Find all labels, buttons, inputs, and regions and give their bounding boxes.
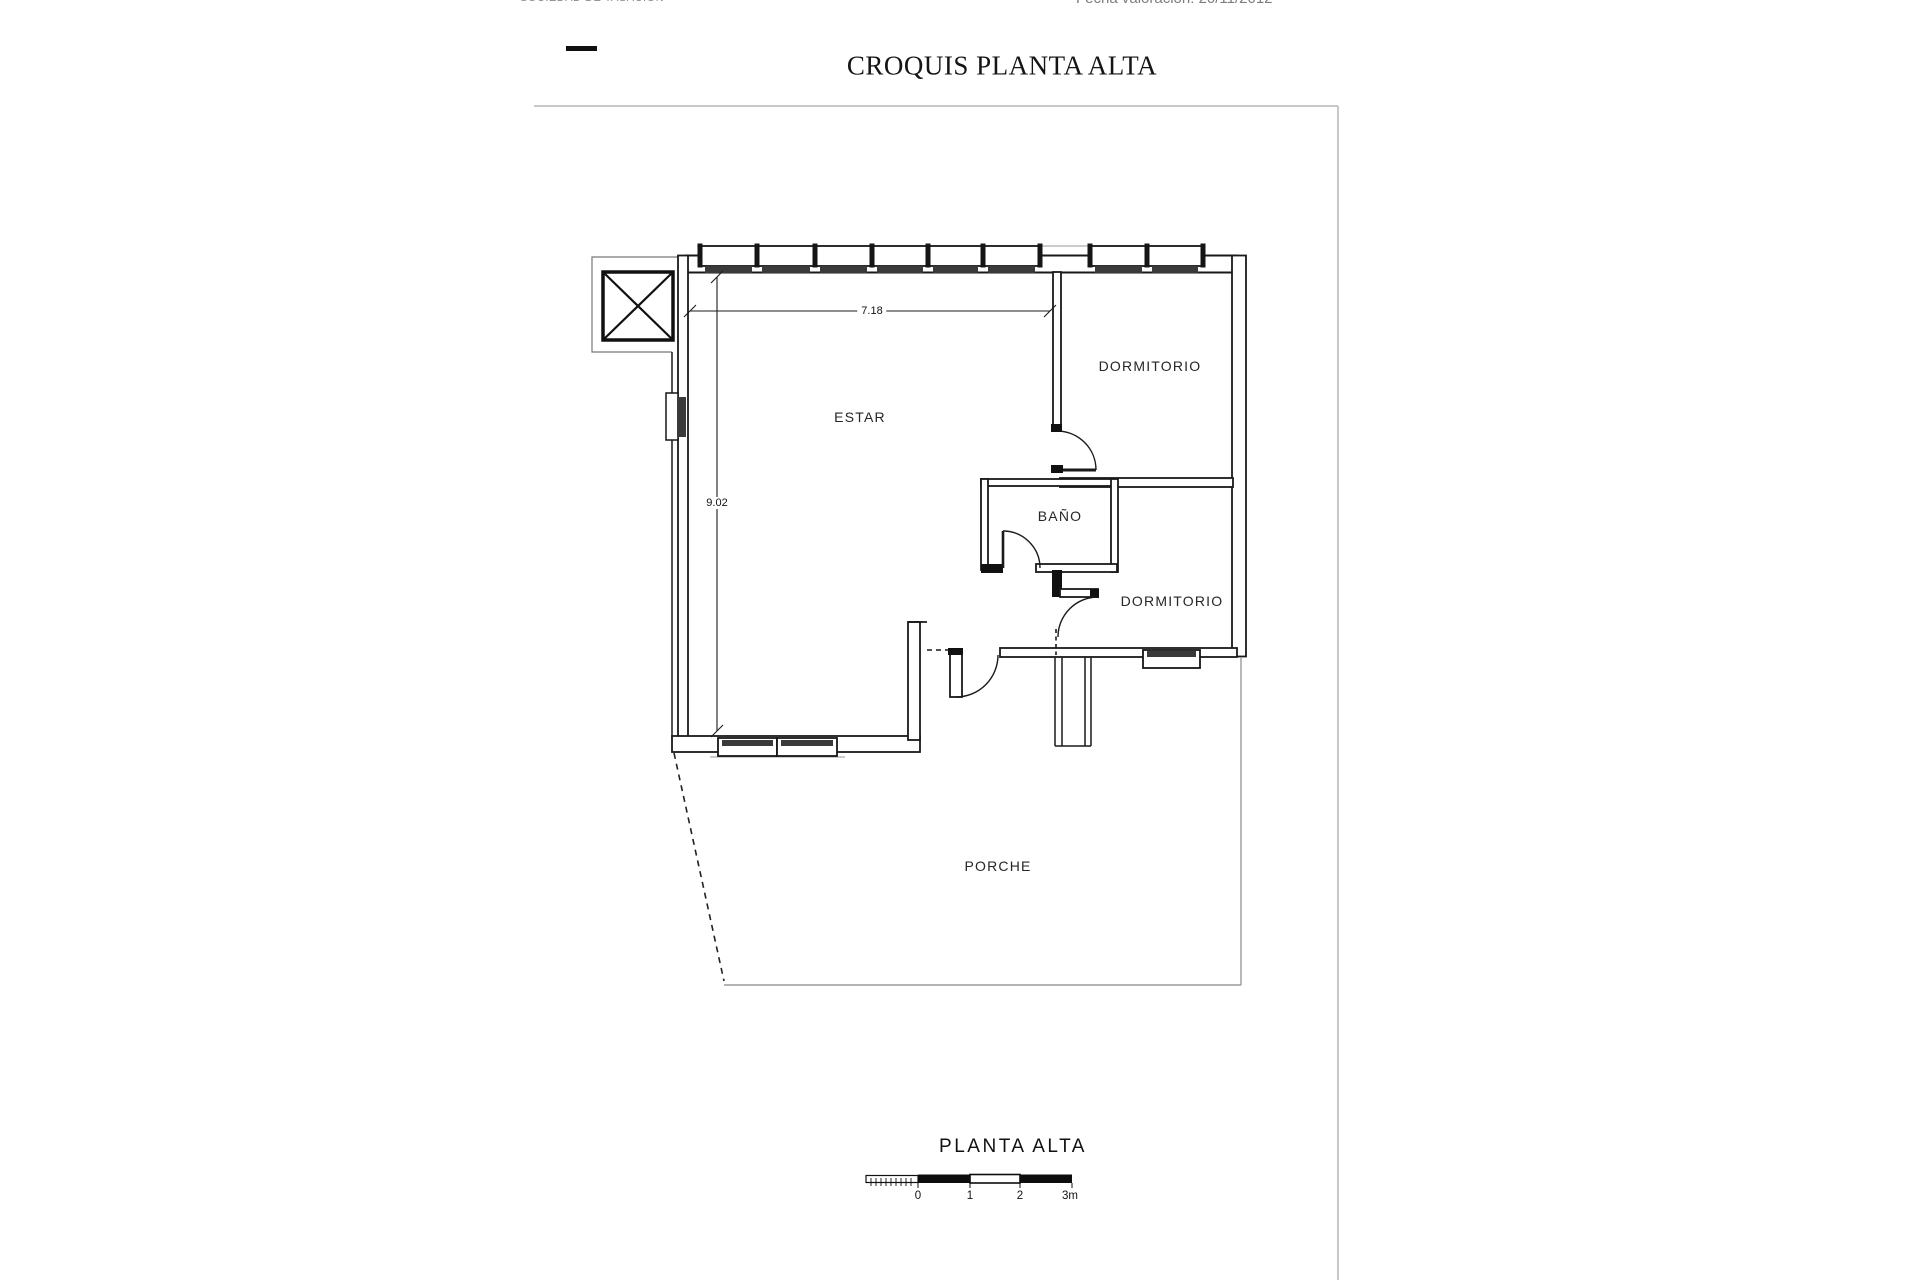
dimension-lines xyxy=(684,271,1056,737)
porch-outline xyxy=(674,246,1241,985)
dimension-width-text: 7.18 xyxy=(857,305,886,317)
windows xyxy=(666,244,1206,757)
room-label-dormitorio-1: DORMITORIO xyxy=(1099,358,1202,374)
plan-caption: PLANTA ALTA xyxy=(939,1136,1087,1158)
chimney-stub xyxy=(1055,657,1091,746)
scale-label-2: 2 xyxy=(1017,1190,1023,1202)
dimension-height-text: 9.02 xyxy=(702,497,731,509)
room-label-bano: BAÑO xyxy=(1038,508,1082,524)
scale-label-0: 0 xyxy=(915,1190,921,1202)
room-label-estar: ESTAR xyxy=(834,409,886,425)
scale-label-1: 1 xyxy=(967,1190,973,1202)
interior-walls xyxy=(981,272,1233,598)
scale-bar xyxy=(866,1175,1072,1189)
room-label-porche: PORCHE xyxy=(964,858,1031,874)
scale-label-3m: 3m xyxy=(1062,1190,1078,1202)
scanned-floor-plan-page: SOCIEDAD DE TASACIÓN Fecha valoración: 2… xyxy=(0,0,1920,1280)
floor-plan-drawing xyxy=(0,0,1920,1280)
room-label-dormitorio-2: DORMITORIO xyxy=(1121,593,1224,609)
